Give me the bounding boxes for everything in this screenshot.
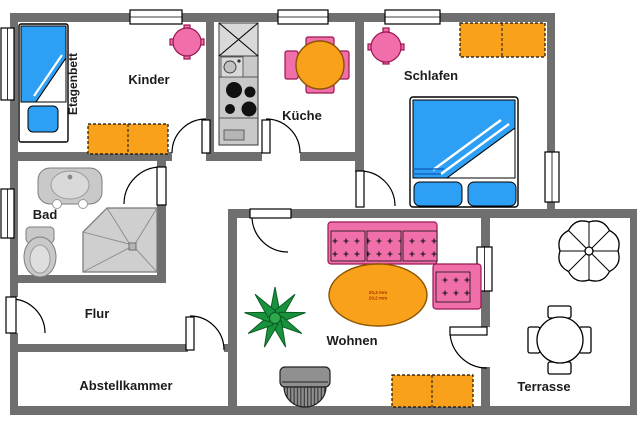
room-kueche: Küche [219, 23, 349, 145]
sofa [328, 222, 437, 264]
floor-plan: Kinder Etagenbett K [0, 0, 640, 427]
room-schlafen: Schlafen [368, 23, 545, 207]
wall-segment [481, 290, 490, 327]
wall-segment [18, 344, 188, 352]
room-label-schlafen: Schlafen [404, 68, 458, 83]
kitchen-sink [221, 57, 243, 77]
wall-segment [157, 204, 166, 283]
wall-segment [228, 209, 237, 415]
room-bad: Bad [24, 168, 157, 277]
window-bad-left [1, 189, 14, 238]
kueche-door [262, 119, 300, 153]
kitchen-table [296, 41, 344, 89]
patio-table-set [528, 306, 591, 374]
entrance-door [6, 297, 45, 333]
window-schlafen-right [545, 152, 559, 202]
window-kinder-left [1, 28, 14, 100]
coffee-table-annotation-1: 20,3 mm [369, 290, 387, 295]
wall-segment [630, 210, 637, 415]
window-kueche-top [278, 10, 328, 24]
bad-door [124, 167, 166, 205]
terrasse-door [450, 327, 487, 368]
wall-segment [291, 209, 637, 218]
wall-segment [10, 333, 18, 415]
wohnen-door [250, 209, 291, 252]
double-bed [410, 97, 518, 207]
room-label-bad: Bad [33, 207, 58, 222]
floor-plan-canvas: Kinder Etagenbett K [0, 0, 640, 427]
tv [280, 367, 330, 407]
coffee-table-annotation-2: 20,2 mm [369, 296, 387, 301]
room-label-kueche: Küche [282, 108, 322, 123]
wall-segment [228, 209, 250, 218]
wall-segment [10, 406, 637, 415]
room-label-kinder: Kinder [128, 72, 169, 87]
schlafen-stool [368, 28, 404, 64]
kinder-door [172, 119, 210, 153]
kinder-stool [170, 25, 204, 59]
room-label-wohnen: Wohnen [326, 333, 377, 348]
kitchen-unit [219, 23, 258, 145]
wall-segment [206, 152, 262, 161]
room-label-terrasse: Terrasse [517, 379, 570, 394]
abstellkammer-door [186, 316, 224, 350]
corner-shower [83, 208, 157, 272]
schlafen-door [356, 171, 395, 207]
kitchen-table-set [285, 37, 349, 93]
wall-segment [355, 13, 364, 172]
room-wohnen: 20,3 mm 20,2 mm Wohnen [244, 222, 481, 407]
window-kinder-top [130, 10, 182, 24]
parasol [559, 221, 619, 281]
wall-segment [481, 367, 490, 406]
room-terrasse: Terrasse [517, 221, 619, 394]
toilet [24, 227, 56, 277]
washbasin [38, 168, 102, 209]
room-label-etagenbett: Etagenbett [66, 53, 80, 115]
room-label-flur: Flur [85, 306, 110, 321]
armchair [433, 264, 481, 309]
wall-segment [481, 218, 490, 248]
plant [244, 287, 307, 349]
bunk-bed [19, 24, 68, 142]
wall-segment [300, 152, 364, 161]
room-label-abstellkammer: Abstellkammer [79, 378, 172, 393]
coffee-table: 20,3 mm 20,2 mm [329, 264, 427, 326]
room-kinder: Kinder Etagenbett [19, 24, 204, 154]
patio-table [537, 317, 583, 363]
window-schlafen-top [385, 10, 440, 24]
